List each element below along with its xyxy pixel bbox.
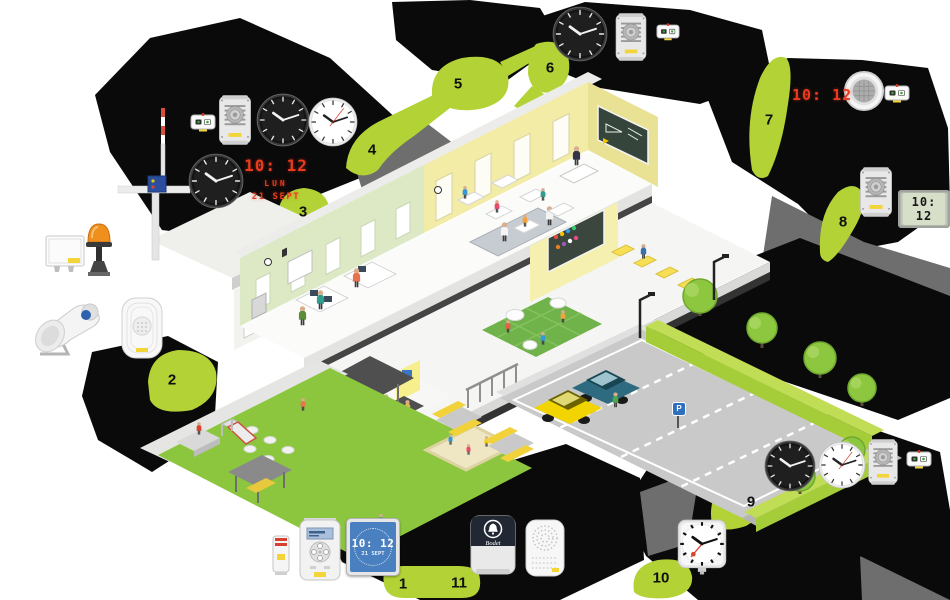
lcd-time: 10: 12 bbox=[903, 193, 945, 225]
badge-11[interactable]: 11 bbox=[451, 575, 467, 592]
wall-speaker bbox=[612, 12, 650, 62]
outdoor-sounder bbox=[120, 296, 164, 360]
analog-clock-black bbox=[256, 93, 310, 147]
lcd-blue-time: 10: 12 bbox=[352, 537, 395, 550]
analog-clock-black bbox=[764, 438, 816, 494]
analog-clock-black bbox=[552, 6, 608, 62]
lcd-calendar-clock: 10: 12 21 SEPT bbox=[346, 518, 400, 576]
badge-9[interactable]: 9 bbox=[747, 494, 755, 511]
radio-receiver-module bbox=[656, 22, 680, 41]
badge-4[interactable]: 4 bbox=[368, 142, 376, 159]
radio-transmitter bbox=[270, 534, 292, 576]
badge-1[interactable]: 1 bbox=[399, 576, 407, 593]
radio-receiver-module bbox=[190, 112, 216, 132]
led-calendar-clock: 10: 12 LUN 21 SEPT bbox=[244, 156, 308, 202]
led-time: 10: 12 bbox=[244, 156, 308, 175]
badge-7[interactable]: 7 bbox=[765, 112, 773, 129]
master-clock-controller bbox=[298, 518, 342, 582]
led-wall-clock: 10: 12 bbox=[792, 86, 852, 104]
lcd-clock: 10: 12 bbox=[898, 190, 950, 228]
led-day: LUN bbox=[244, 179, 308, 188]
wall-speaker bbox=[856, 166, 896, 218]
badge-10[interactable]: 10 bbox=[653, 570, 670, 587]
parking-sign: P bbox=[672, 402, 686, 416]
analog-clock-black bbox=[188, 153, 244, 209]
badge-8[interactable]: 8 bbox=[839, 214, 847, 231]
badge-3[interactable]: 3 bbox=[299, 204, 307, 221]
brand-label: Bodet bbox=[472, 540, 514, 547]
indoor-speaker bbox=[524, 518, 566, 578]
radio-receiver-module bbox=[906, 449, 932, 469]
wall-speaker bbox=[215, 94, 255, 146]
analog-clock-white bbox=[818, 441, 866, 489]
led-date: 21 SEPT bbox=[244, 192, 308, 202]
junction-box bbox=[44, 234, 86, 272]
lcd-screen: 10: 12 21 SEPT bbox=[350, 522, 396, 572]
badge-2[interactable]: 2 bbox=[168, 372, 176, 389]
analog-clock-white bbox=[308, 97, 358, 147]
badge-5[interactable]: 5 bbox=[454, 76, 462, 93]
bodet-school-time-system-diagram: 10: 12 LUN 21 SEPT 10: 12 10: 12 10: 12 … bbox=[0, 0, 950, 600]
badge-6[interactable]: 6 bbox=[546, 60, 554, 77]
flashing-beacon bbox=[84, 220, 114, 278]
radio-receiver-module bbox=[884, 83, 910, 103]
station-analog-clock bbox=[676, 518, 728, 575]
horn-loudspeaker bbox=[34, 282, 118, 362]
wall-speaker bbox=[864, 438, 902, 486]
lcd-blue-date: 21 SEPT bbox=[361, 551, 384, 557]
